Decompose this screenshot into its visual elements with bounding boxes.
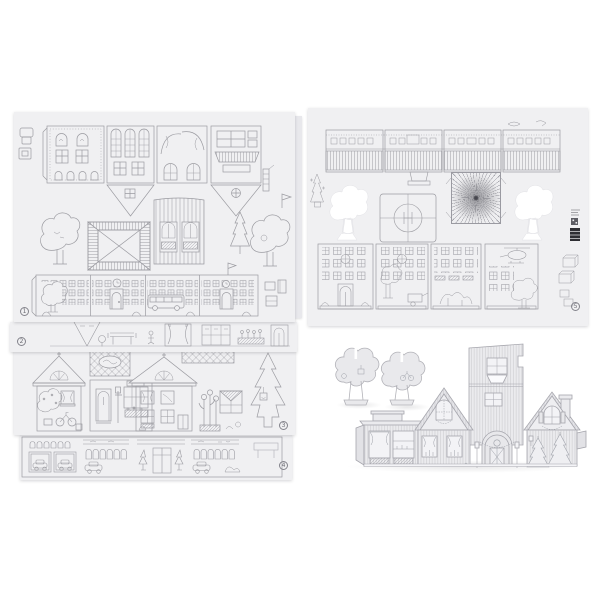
apartment-facades — [318, 244, 538, 309]
curtain-doorway — [165, 324, 191, 346]
sheet-number-badge: 5 — [571, 302, 580, 311]
gabled-house-facade — [129, 353, 197, 431]
sheet-5: 5 — [308, 108, 588, 326]
balcony-awning-panel — [154, 198, 204, 264]
facade-garden-windows — [157, 126, 207, 183]
fir-cutout-tip — [74, 322, 100, 346]
shop-row-facade — [191, 440, 240, 473]
topiary-icon — [310, 174, 325, 207]
helicopter-icon — [500, 248, 530, 263]
tree-icon — [41, 213, 80, 264]
sheet-1: 1 — [14, 112, 295, 322]
sheet-2-artwork — [10, 322, 297, 352]
product-photo: 1 — [0, 0, 600, 600]
bench-icon — [99, 333, 137, 347]
sunburst-roof-panel — [451, 172, 501, 224]
fir-tree-cutout — [251, 353, 285, 427]
flower-box — [238, 330, 264, 344]
small-fir-icon — [175, 450, 183, 470]
pyramid-roof-panel — [88, 222, 150, 270]
sheet-2: 2 — [10, 322, 297, 352]
topiary-icon — [231, 212, 250, 254]
facade-tall-windows — [107, 126, 154, 216]
banner-scribbles — [508, 121, 546, 126]
panel-door — [271, 325, 288, 346]
gabled-house-facade — [33, 352, 85, 431]
sheet-3-artwork — [14, 347, 295, 435]
sheet-number-badge: 3 — [279, 421, 288, 430]
tower — [469, 344, 523, 445]
printed-label — [570, 210, 580, 241]
slot-tree-icon — [381, 351, 425, 405]
sheet-number-badge: 1 — [20, 307, 29, 316]
sheet-5-artwork — [308, 108, 588, 326]
assembled-model-artwork — [330, 336, 590, 476]
sheet-number-badge: 2 — [17, 337, 26, 346]
barcode — [570, 228, 580, 241]
slot-tree-icon — [335, 347, 379, 405]
base-trim — [364, 464, 577, 467]
side-tab — [577, 431, 586, 449]
tree-cutout — [330, 185, 553, 240]
wardrobe-shelf — [202, 325, 230, 345]
shop-row-facade — [83, 440, 129, 473]
shopfront-facade — [90, 380, 152, 431]
sheet-4: 4 — [20, 435, 292, 480]
street-facade-strip — [32, 263, 258, 316]
facade-arched-windows — [43, 126, 104, 183]
small-fir-icon — [139, 450, 147, 470]
tree-flag-icon — [251, 194, 291, 266]
box-parts-icons — [559, 255, 578, 306]
garage-facade — [29, 442, 76, 473]
armchair-icon — [19, 128, 33, 159]
sheet-1-artwork — [14, 112, 295, 322]
gabled-house — [415, 388, 473, 466]
flat-roof-shop — [356, 411, 422, 466]
figure-icon — [148, 331, 154, 344]
gabled-house-with-chimney — [524, 392, 580, 467]
small-parts-icons — [265, 280, 286, 306]
facade-shop-awning — [211, 126, 274, 216]
market-stalls-strip — [326, 121, 560, 185]
assembled-village-model — [330, 336, 590, 476]
table-outline — [254, 443, 278, 458]
flower-window-panel — [199, 390, 242, 431]
helipad-panel — [380, 194, 436, 242]
sheet-3: 3 — [14, 347, 295, 435]
entrance-facade — [137, 440, 185, 473]
sheet-number-badge: 4 — [279, 461, 288, 470]
sheet-4-artwork — [20, 435, 292, 480]
